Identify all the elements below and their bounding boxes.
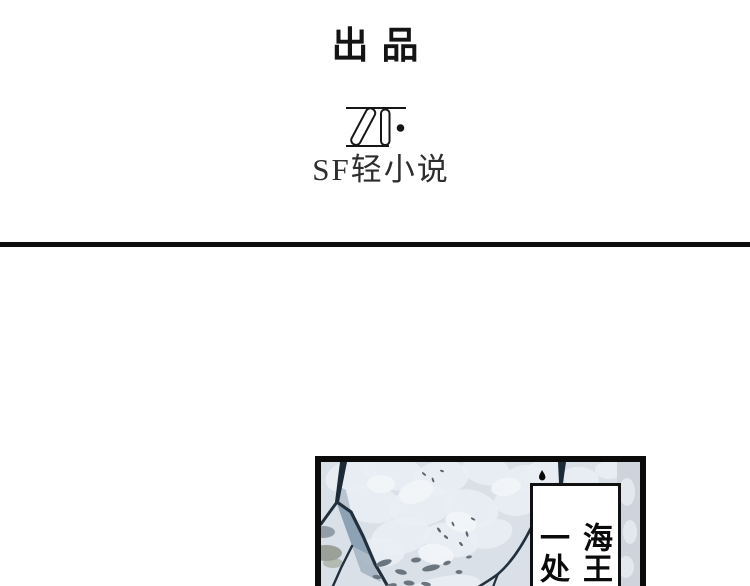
speech-bubble: 海王 一处 <box>530 483 621 586</box>
section-divider <box>0 242 750 247</box>
speech-text: 海王 一处 <box>530 522 616 586</box>
comic-panel: 海王 一处 <box>315 456 646 586</box>
sf-light-novel-logo-mark-icon <box>344 105 408 149</box>
publisher-brand-name: SF轻小说 <box>6 152 750 188</box>
comic-page: 出品 SF轻小说 <box>0 0 750 586</box>
speech-column-right: 海王 <box>573 522 616 586</box>
producer-heading: 出品 <box>0 27 750 67</box>
speech-column-left: 一处 <box>530 522 573 586</box>
